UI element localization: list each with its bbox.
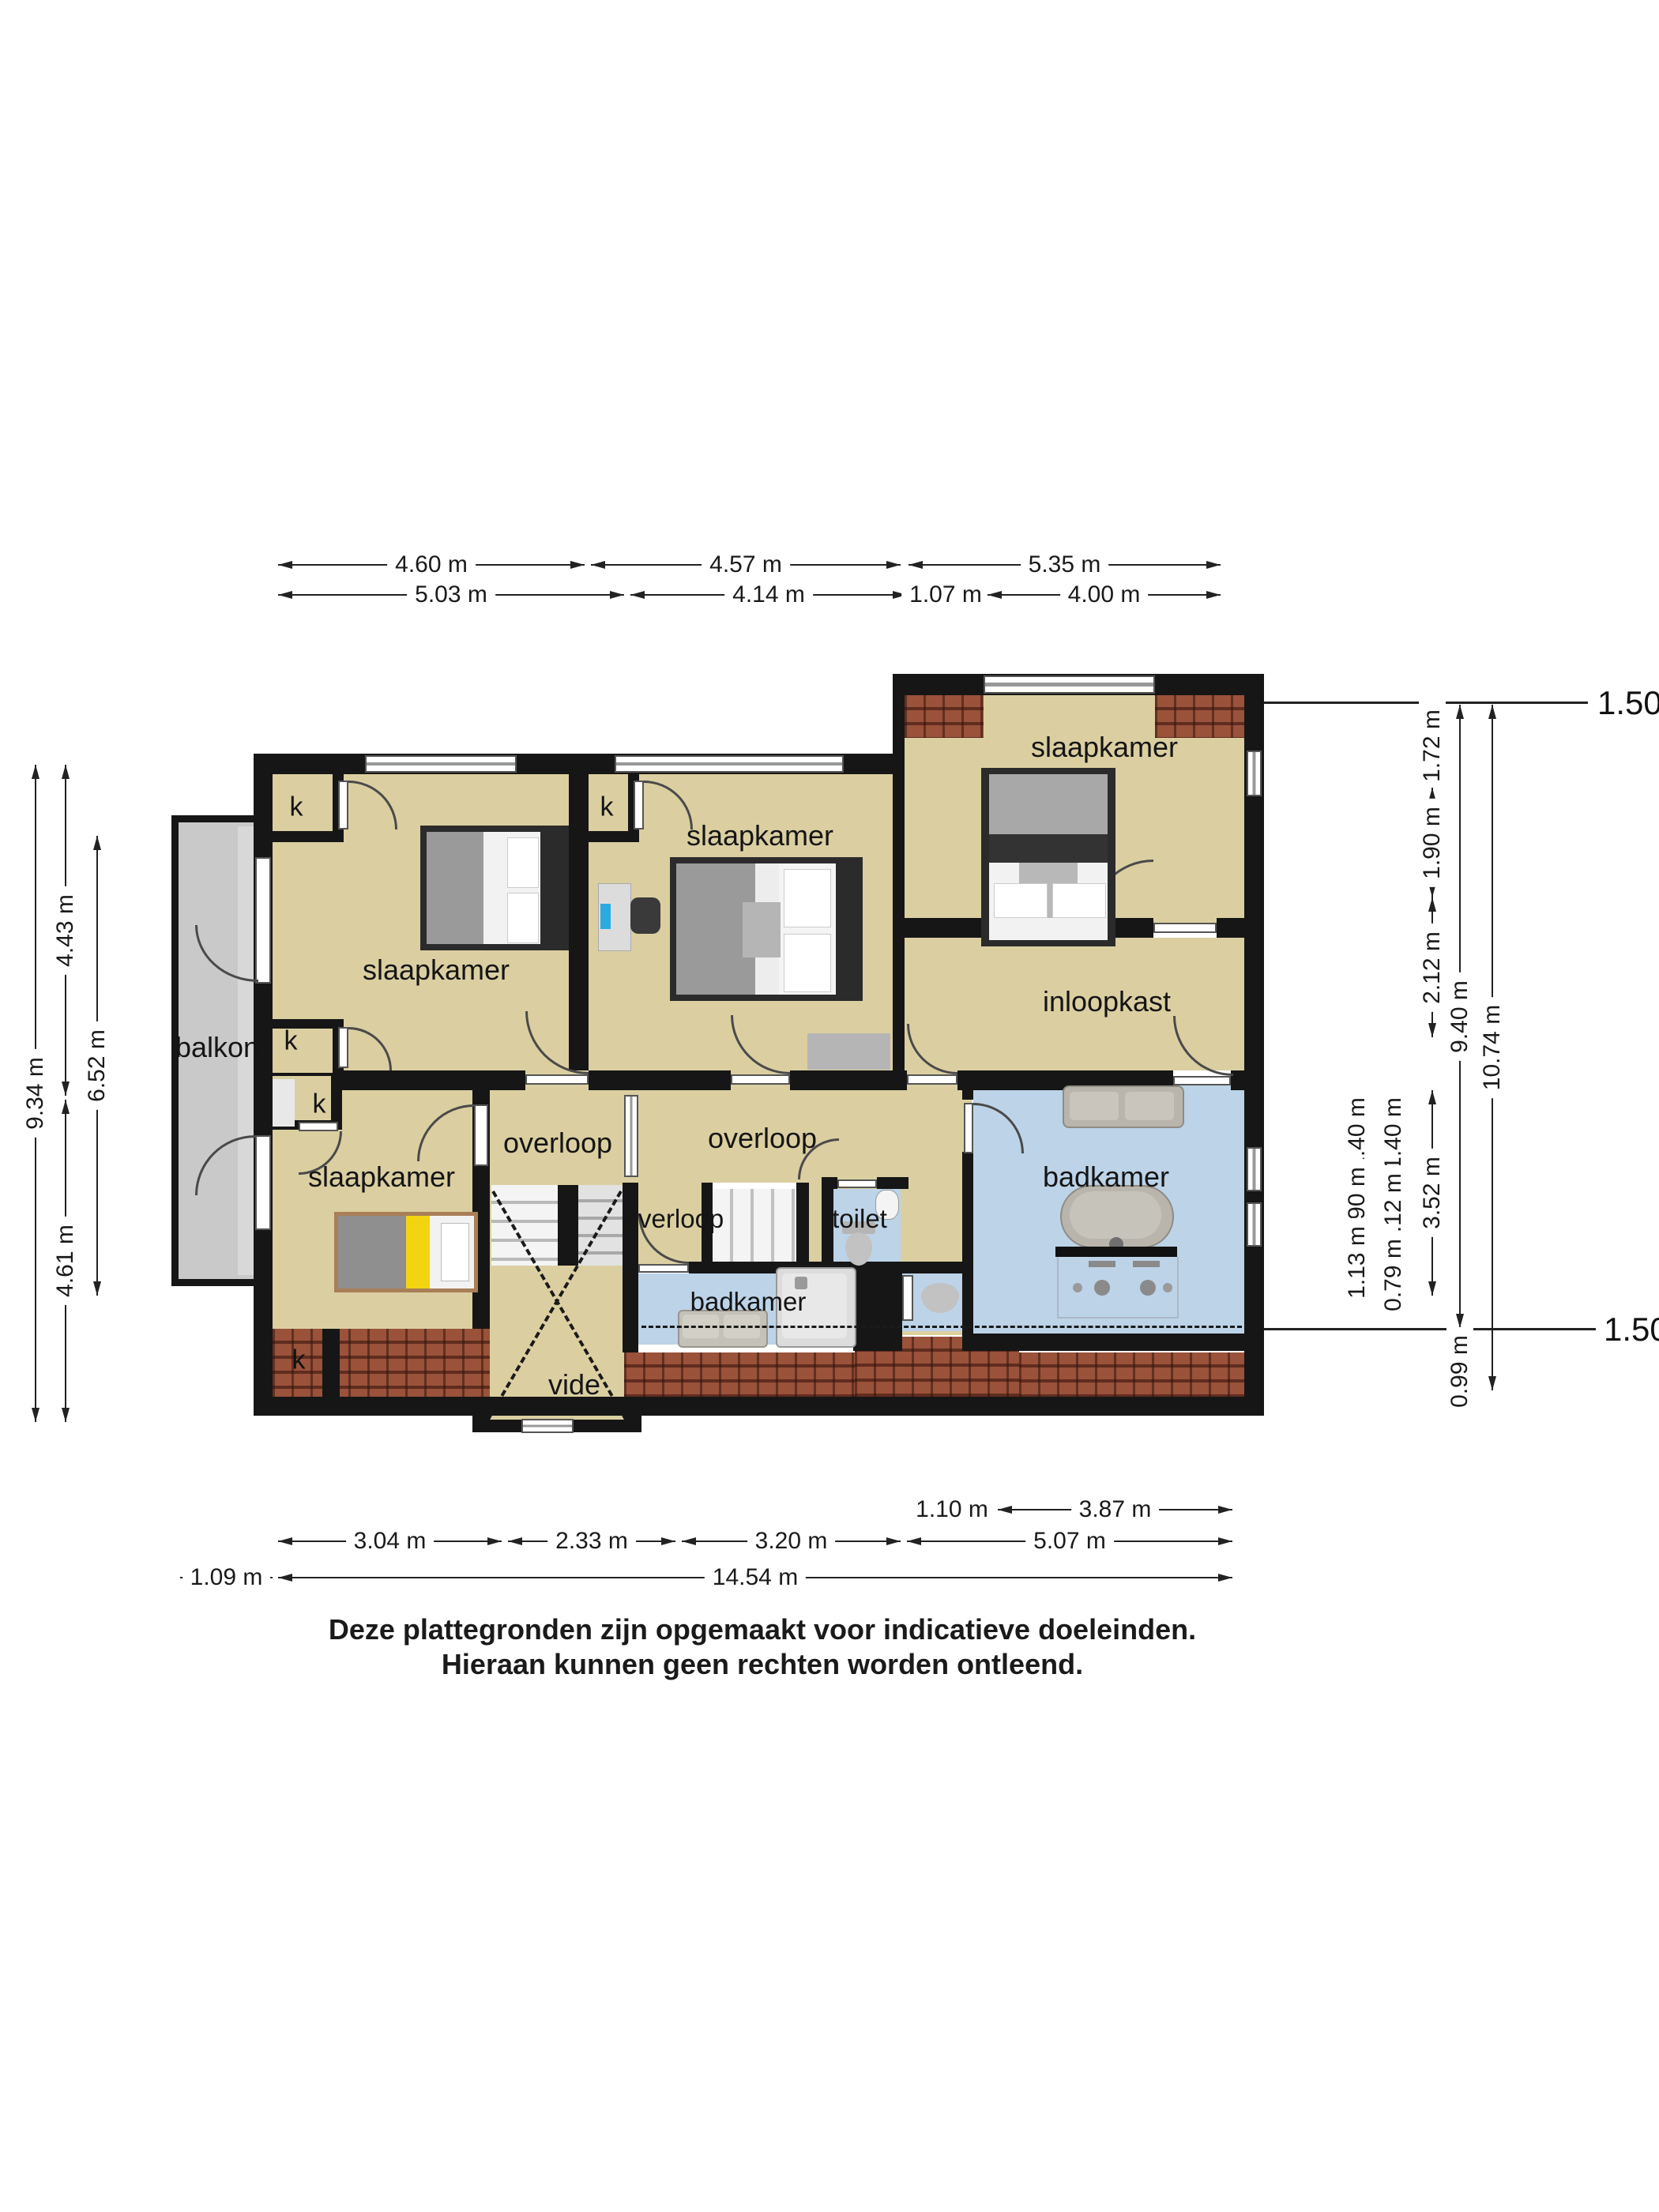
dim-top-107: 1.07 m [910,594,981,596]
closet-k3-box [273,1019,344,1073]
label-closet-3: k [284,1026,298,1057]
label-bedroom-topright: slaapkamer [1031,731,1178,764]
label-bathroom-small: badkamer [690,1287,807,1317]
door-bathroom-main [964,1103,973,1153]
bathtub-inner [1070,1191,1161,1239]
dim-right-190: 1.90 m [1431,788,1433,897]
dim-bottom-387: 3.87 m [998,1509,1232,1510]
label-walkincloset: inloopkast [1043,985,1171,1018]
dim-right-113: 1.13 m [1356,1229,1358,1296]
dim-right-352: 3.52 m [1431,1090,1433,1296]
shower-head-1 [1089,1261,1115,1267]
label-closet-1: k [290,792,303,823]
vanity-bathM-sink1 [1070,1092,1119,1120]
wall-stairs-divider [558,1185,578,1266]
label-bathroom-main: badkamer [1043,1161,1169,1194]
desk-chair [630,897,660,934]
dim-left-443: 4.43 m [65,765,66,1096]
bed-bedroom1-pillow-1 [507,837,539,888]
bed-bedroom2-pad [743,902,781,957]
label-closet-4: k [313,1089,326,1120]
door-toilet-nook [902,1275,913,1321]
wall-bathS-nook-block [853,1262,902,1351]
door-balcony-2 [255,1135,271,1230]
window-top-bedroom2 [615,755,844,773]
dim-top-457: 4.57 m [591,564,901,566]
door-toilet [837,1179,877,1188]
shower-head-2 [1133,1261,1160,1267]
bed-bedroomBL-yellow [406,1216,430,1288]
wall-mid-b [589,1070,731,1090]
footer-disclaimer-line1: Deze plattegronden zijn opgemaakt voor i… [329,1613,1196,1646]
dim-bottom-320: 3.20 m [682,1540,901,1542]
bed-bedroomTR-throw [989,834,1108,863]
stairs-main-flight [713,1189,796,1264]
bed-bedroomBL-pillow [441,1223,469,1281]
wall-stairs-main-right [796,1183,809,1273]
dim-bottom-110: 1.10 m [912,1509,991,1510]
label-balcony: balkon [175,1031,259,1064]
bed-bedroomTR-pillow-2 [1052,883,1106,918]
window-right-bedroomTR [1247,750,1262,796]
label-bedroom-mid: slaapkamer [687,819,833,852]
closet-k4-shelf [273,1079,295,1127]
roof-hatch-topright-left [905,695,984,738]
dim-right-212: 2.12 m [1431,897,1433,1037]
dim-right-172: 1.72 m [1431,703,1433,788]
wall-toilet-top-b [877,1177,908,1189]
stairs-left-flight [491,1185,558,1266]
bath-dashed-height-line [641,1326,1242,1328]
dim-right-140b: 1.40 m [1393,1090,1394,1177]
wall-hatch-divider [322,1329,340,1398]
shower-drain-2 [1140,1280,1156,1296]
label-landing-main: overloop [708,1122,817,1155]
wall-bedroomTR-bottom-b [1217,918,1264,938]
dim-top-503: 5.03 m [278,594,624,596]
floorplan-page: { "labels": { "bedroom_tl": "slaapkamer"… [0,0,1659,2212]
dim-left-652: 6.52 m [96,836,98,1296]
door-closet-k3 [338,1027,348,1068]
closet-k2-box [589,774,639,842]
wall-bathM-bottom [962,1334,1244,1351]
door-closet-k4 [299,1122,338,1131]
window-void-bottom [521,1419,574,1433]
label-closet-2: k [600,792,614,823]
window-top-bedroomTR [984,675,1155,694]
dim-top-400: 4.00 m [987,594,1221,596]
window-landing-partition [624,1095,638,1177]
dim-bottom-1454: 14.54 m [278,1577,1232,1578]
window-right-bathM-1 [1247,1147,1262,1191]
label-landing-left: overloop [503,1127,612,1160]
height-line-bottom [1264,1328,1596,1330]
dim-left-934: 9.34 m [35,765,36,1422]
door-bedroom2 [731,1074,790,1085]
dim-top-414: 4.14 m [630,594,907,596]
dim-right-079: 0.79 m [1393,1242,1394,1308]
dim-bottom-304: 3.04 m [278,1540,502,1542]
wall-outer-bottom [254,1397,1244,1416]
door-inloopkast-bath [1173,1076,1231,1085]
dim-bottom-233: 2.33 m [508,1540,675,1542]
label-landing-small: overloop [624,1204,724,1234]
dim-top-460: 4.60 m [278,564,585,566]
door-bedroomTR [1153,923,1217,933]
door-corridor [907,1074,957,1085]
dim-top-535: 5.35 m [908,564,1221,566]
shower-dot-1 [1073,1283,1082,1292]
footer-disclaimer-line2: Hieraan kunnen geen rechten worden ontle… [442,1648,1083,1681]
wall-bathM-left-a [962,1082,973,1100]
label-closet-5: k [292,1345,306,1376]
bed-bedroom2-pillow-1 [784,869,831,927]
closet-k1-box [273,774,344,842]
door-bedroomBL [474,1104,488,1166]
door-closet-k1 [338,781,348,829]
bed-bedroomTR-pillow-1 [994,883,1048,918]
dim-bottom-507: 5.07 m [907,1540,1232,1542]
label-void: vide [548,1368,600,1401]
dim-right-099: 0.99 m [1459,1328,1461,1415]
height-line-bottom-label: 1.50m lijn [1604,1311,1659,1349]
wall-bathM-left-b [962,1152,973,1335]
dim-right-940: 9.40 m [1459,705,1461,1328]
label-bedroom-topleft: slaapkamer [363,954,510,987]
bed-bedroom1-pillow-2 [507,893,539,943]
door-closet-k2 [634,781,644,829]
wall-outer-left [254,754,273,1416]
door-bedroom1 [525,1074,589,1085]
window-top-bedroom1 [365,755,517,773]
laptop [600,904,611,929]
bed-bedroom2-pillow-2 [784,934,831,992]
bed-bedroomTR-headpad [989,774,1108,834]
wall-topright-left-join [893,674,905,774]
dim-bottom-109: 1.09 m [180,1577,273,1578]
dim-left-461: 4.61 m [65,1100,66,1422]
roof-hatch-bottom-right [1019,1352,1244,1398]
dim-right-1074: 10.74 m [1492,705,1493,1390]
roof-hatch-bottom-mid [624,1352,855,1398]
bed-bedroomBL-blanket [338,1216,406,1288]
shower-dot-2 [1163,1283,1172,1292]
vanity-bathM-sink2 [1125,1092,1174,1120]
label-toilet: toilet [832,1204,887,1234]
height-line-top-label: 1.50m lijn [1597,684,1659,722]
bed-bedroom1-blanket [427,832,483,944]
wall-mid-c [790,1070,907,1090]
label-bedroom-bottomleft: slaapkamer [308,1161,455,1194]
shower-drain-1 [1094,1280,1110,1296]
door-bathroom-small [638,1264,689,1273]
wall-bathS-top-a [624,1262,638,1273]
mat-bedroom2 [807,1033,890,1070]
shower-partition [1055,1247,1177,1257]
window-right-bathM-2 [1247,1202,1262,1247]
